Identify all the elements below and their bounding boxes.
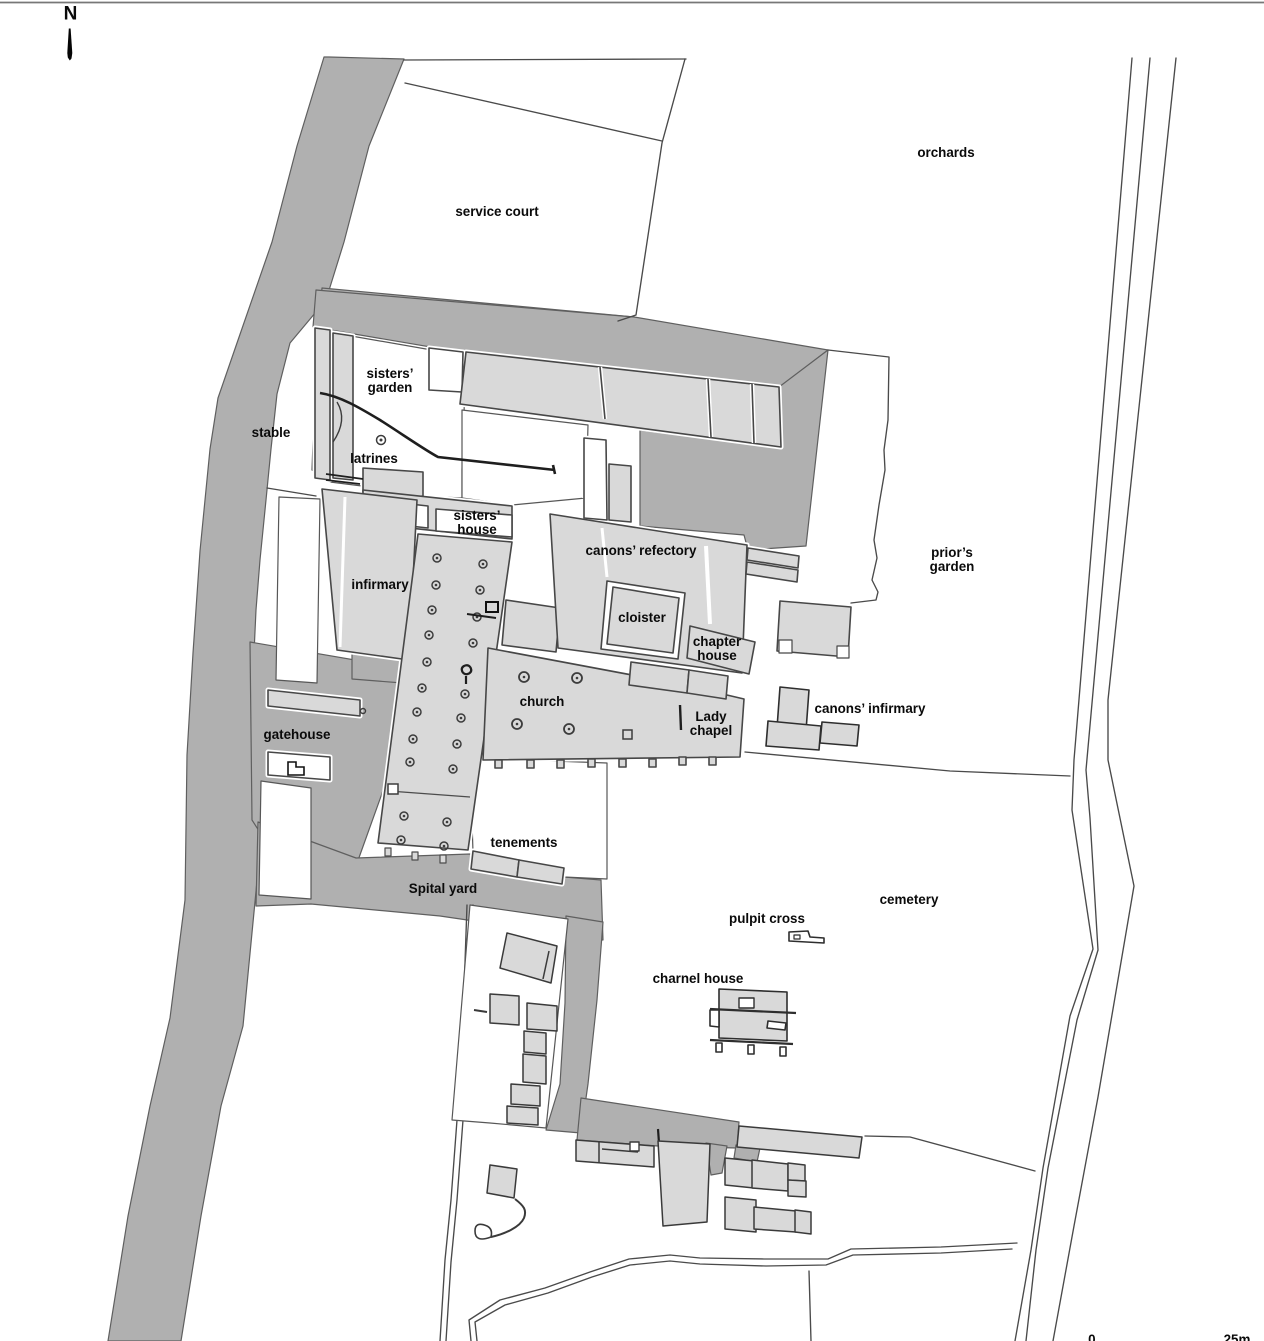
svg-text:chapel: chapel bbox=[690, 723, 732, 738]
svg-text:garden: garden bbox=[930, 559, 975, 574]
svg-text:orchards: orchards bbox=[917, 145, 974, 160]
svg-text:house: house bbox=[457, 522, 496, 537]
svg-text:infirmary: infirmary bbox=[351, 577, 409, 592]
svg-text:25m: 25m bbox=[1224, 1332, 1251, 1341]
svg-text:cemetery: cemetery bbox=[880, 892, 939, 907]
svg-text:0: 0 bbox=[1088, 1332, 1095, 1341]
svg-text:service court: service court bbox=[455, 204, 539, 219]
svg-text:sisters’: sisters’ bbox=[454, 508, 501, 523]
svg-text:garden: garden bbox=[368, 380, 413, 395]
svg-text:canons’ refectory: canons’ refectory bbox=[586, 543, 697, 558]
svg-text:Spital yard: Spital yard bbox=[409, 881, 477, 896]
svg-text:Lady: Lady bbox=[695, 709, 727, 724]
svg-text:cloister: cloister bbox=[618, 610, 666, 625]
svg-text:sisters’: sisters’ bbox=[367, 366, 414, 381]
svg-text:tenements: tenements bbox=[491, 835, 558, 850]
svg-text:N: N bbox=[64, 4, 78, 25]
svg-text:prior’s: prior’s bbox=[931, 545, 973, 560]
svg-text:chapter: chapter bbox=[693, 634, 742, 649]
svg-text:house: house bbox=[697, 648, 736, 663]
svg-text:canons’ infirmary: canons’ infirmary bbox=[815, 701, 926, 716]
svg-text:pulpit cross: pulpit cross bbox=[729, 911, 805, 926]
svg-text:church: church bbox=[520, 694, 565, 709]
svg-text:stable: stable bbox=[252, 425, 291, 440]
svg-text:latrines: latrines bbox=[350, 451, 398, 466]
svg-text:charnel house: charnel house bbox=[653, 971, 744, 986]
svg-text:gatehouse: gatehouse bbox=[264, 727, 331, 742]
